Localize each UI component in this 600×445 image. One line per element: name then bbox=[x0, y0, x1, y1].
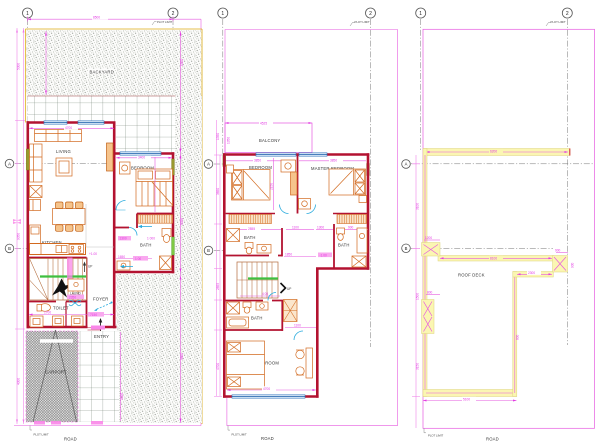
svg-text:BATH: BATH bbox=[338, 243, 350, 248]
svg-text:PLOT LIMIT: PLOT LIMIT bbox=[157, 20, 172, 24]
svg-text:1650: 1650 bbox=[118, 255, 125, 259]
svg-text:5100: 5100 bbox=[463, 397, 470, 401]
svg-text:ROAD: ROAD bbox=[64, 437, 77, 442]
svg-text:2: 2 bbox=[369, 11, 372, 17]
svg-text:B: B bbox=[207, 248, 210, 253]
svg-text:PLOT LIMIT: PLOT LIMIT bbox=[428, 434, 443, 438]
svg-text:A: A bbox=[8, 161, 11, 166]
svg-text:BATH: BATH bbox=[140, 243, 152, 248]
svg-text:900: 900 bbox=[571, 262, 575, 268]
svg-text:1200: 1200 bbox=[425, 236, 432, 240]
svg-text:1850: 1850 bbox=[285, 253, 292, 257]
svg-text:1500: 1500 bbox=[416, 293, 420, 300]
svg-text:1: 1 bbox=[419, 11, 422, 17]
svg-text:3100: 3100 bbox=[416, 203, 420, 210]
svg-text:9050: 9050 bbox=[180, 218, 184, 225]
svg-text:PLOT LIMIT: PLOT LIMIT bbox=[551, 20, 566, 24]
svg-text:PLOT LIMIT: PLOT LIMIT bbox=[355, 20, 370, 24]
svg-text:2: 2 bbox=[172, 11, 175, 17]
svg-text:A: A bbox=[405, 162, 408, 167]
svg-text:1700: 1700 bbox=[44, 311, 51, 315]
svg-text:3850: 3850 bbox=[254, 158, 261, 162]
svg-text:1: 1 bbox=[26, 11, 29, 17]
svg-text:BATH: BATH bbox=[251, 316, 263, 321]
svg-text:1: 1 bbox=[221, 11, 224, 17]
svg-text:CARPORT: CARPORT bbox=[45, 370, 67, 375]
svg-text:800: 800 bbox=[516, 334, 520, 340]
svg-text:3850: 3850 bbox=[216, 188, 220, 195]
svg-text:1100: 1100 bbox=[292, 225, 299, 229]
svg-text:ROOF DECK: ROOF DECK bbox=[458, 273, 485, 278]
svg-text:ROAD: ROAD bbox=[486, 437, 499, 442]
svg-text:B: B bbox=[8, 246, 11, 251]
svg-text:-1.00: -1.00 bbox=[320, 253, 327, 257]
svg-text:BATH: BATH bbox=[244, 235, 256, 240]
svg-text:+1.00: +1.00 bbox=[89, 252, 97, 256]
svg-text:3800: 3800 bbox=[180, 353, 184, 360]
svg-text:1350: 1350 bbox=[227, 137, 231, 144]
svg-text:UP: UP bbox=[88, 265, 92, 269]
svg-text:3850: 3850 bbox=[330, 158, 337, 162]
svg-text:FOYER: FOYER bbox=[93, 297, 108, 302]
svg-text:900: 900 bbox=[348, 225, 354, 229]
svg-text:LIVING: LIVING bbox=[56, 149, 71, 154]
svg-text:TOILET: TOILET bbox=[53, 306, 69, 311]
svg-text:A: A bbox=[207, 162, 210, 167]
svg-text:5000: 5000 bbox=[16, 63, 20, 70]
svg-text:2300: 2300 bbox=[528, 271, 535, 275]
svg-text:4700: 4700 bbox=[65, 126, 72, 130]
svg-text:1 00: 1 00 bbox=[135, 257, 141, 261]
svg-text:B: B bbox=[405, 246, 408, 251]
svg-text:8100: 8100 bbox=[490, 256, 497, 260]
svg-text:9050: 9050 bbox=[16, 233, 20, 240]
svg-text:7150: 7150 bbox=[90, 313, 97, 317]
svg-text:PLOT LIMIT: PLOT LIMIT bbox=[232, 433, 247, 437]
svg-text:PLOT LIMIT: PLOT LIMIT bbox=[34, 433, 49, 437]
svg-text:3150: 3150 bbox=[416, 363, 420, 370]
svg-text:2855: 2855 bbox=[248, 227, 255, 231]
svg-text:900: 900 bbox=[555, 249, 561, 253]
svg-text:BACKYARD: BACKYARD bbox=[90, 69, 114, 74]
svg-text:2350: 2350 bbox=[69, 295, 76, 299]
svg-text:4525: 4525 bbox=[260, 121, 267, 125]
svg-text:1100: 1100 bbox=[294, 324, 301, 328]
svg-text:1300: 1300 bbox=[120, 237, 127, 241]
svg-text:4 00: 4 00 bbox=[262, 292, 268, 296]
svg-text:2855: 2855 bbox=[216, 283, 220, 290]
svg-text:4000: 4000 bbox=[16, 378, 20, 385]
svg-text:4700: 4700 bbox=[263, 387, 270, 391]
svg-text:1 000: 1 000 bbox=[147, 237, 155, 241]
svg-text:ROAD: ROAD bbox=[261, 436, 274, 441]
svg-text:BALCONY: BALCONY bbox=[259, 138, 280, 143]
svg-text:ENTRY: ENTRY bbox=[94, 334, 109, 339]
svg-text:1500: 1500 bbox=[180, 59, 184, 66]
svg-text:1350: 1350 bbox=[216, 133, 220, 140]
svg-text:3400: 3400 bbox=[138, 156, 145, 160]
svg-text:2150: 2150 bbox=[270, 183, 274, 190]
svg-text:6200: 6200 bbox=[490, 150, 497, 154]
svg-text:4700: 4700 bbox=[216, 363, 220, 370]
svg-text:8500: 8500 bbox=[93, 16, 100, 20]
svg-text:1300: 1300 bbox=[317, 225, 324, 229]
svg-text:800: 800 bbox=[427, 291, 433, 295]
svg-text:4000: 4000 bbox=[120, 393, 124, 400]
svg-text:2: 2 bbox=[566, 11, 569, 17]
svg-text:UP: UP bbox=[287, 287, 291, 291]
